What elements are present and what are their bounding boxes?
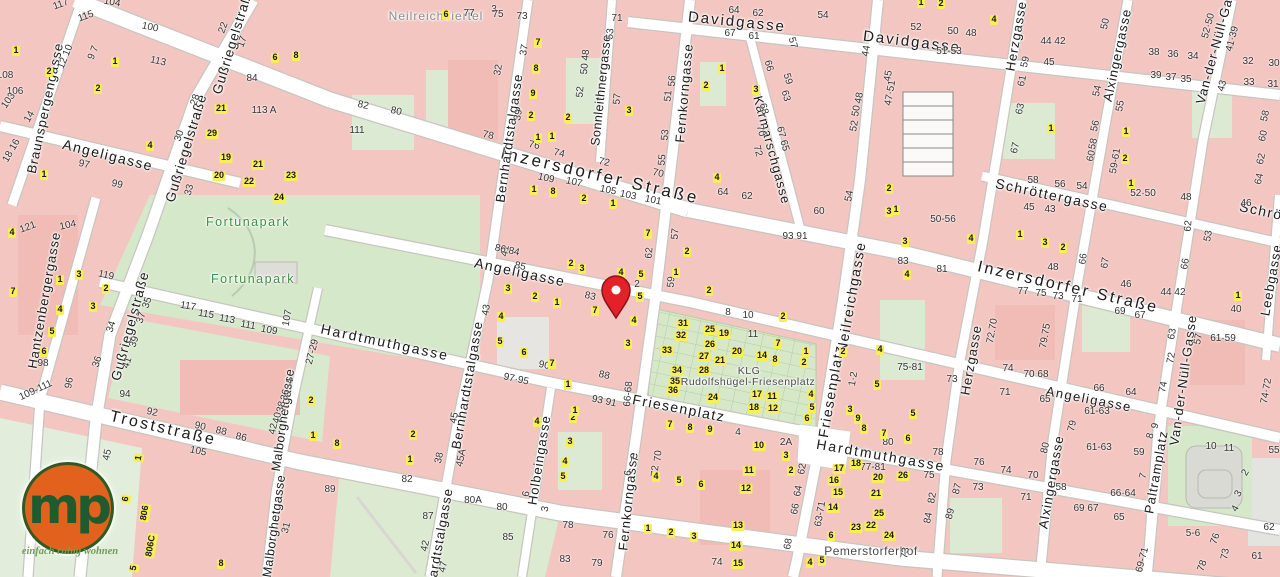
mp-logo-text: mp bbox=[28, 477, 108, 535]
location-pin[interactable] bbox=[602, 276, 630, 318]
marker-layer bbox=[0, 0, 1280, 577]
mp-logo: mp bbox=[22, 462, 114, 554]
mp-logo-tagline: einfach ruhig wohnen bbox=[8, 546, 132, 557]
map-viewport[interactable]: Inzersdorfer StraßeInzersdorfer StraßeDa… bbox=[0, 0, 1280, 577]
